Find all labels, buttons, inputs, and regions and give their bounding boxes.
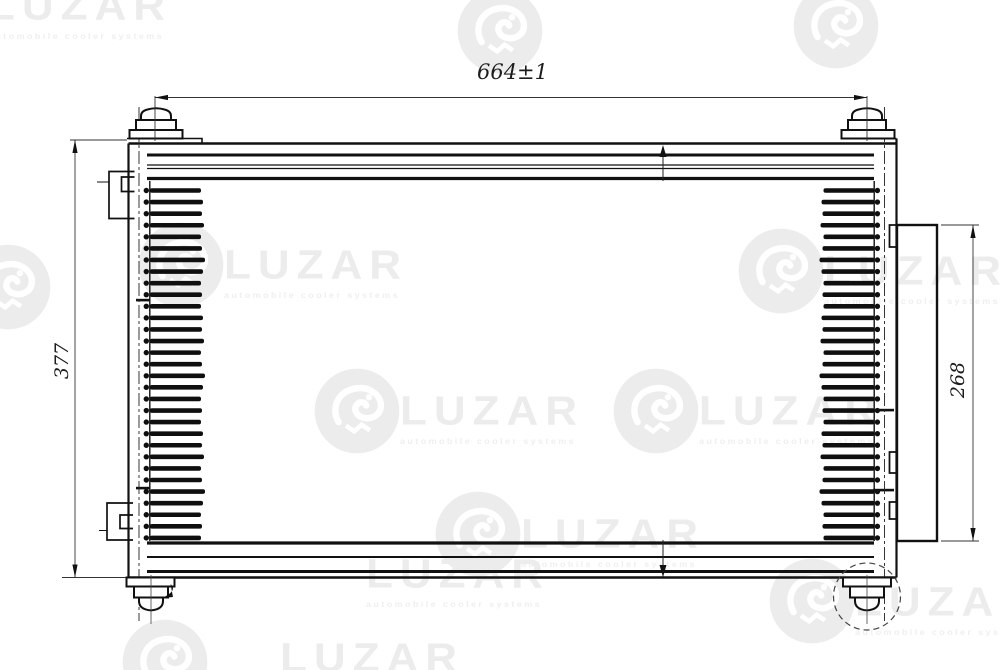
tube-end-dot [875, 211, 880, 216]
tube-end-dot [875, 396, 880, 401]
condenser-drawing [0, 0, 1000, 670]
fin-bar [824, 188, 875, 193]
tube-end-dot [875, 257, 880, 262]
tube-end-dot [875, 466, 880, 471]
tube-end-dot [144, 419, 149, 424]
fin-bar [150, 327, 202, 332]
header-walls [150, 181, 874, 541]
fin-bar [822, 501, 875, 506]
mounting-pin-bottom-left [127, 575, 175, 624]
receiver-drier [890, 225, 938, 541]
fin-bar [150, 188, 201, 193]
tube-end-dot [144, 257, 149, 262]
fin-bar [150, 443, 202, 448]
fin-bar [824, 466, 875, 471]
fin-bar [824, 536, 875, 541]
tube-end-dot [144, 373, 149, 378]
fin-bar [150, 304, 201, 309]
dimension-receiver-label: 268 [936, 358, 980, 402]
tube-end-dot [875, 280, 880, 285]
right-fins [820, 188, 881, 541]
tube-end-dot [144, 269, 149, 274]
fin-bar [821, 455, 875, 460]
fin-bar [150, 512, 201, 517]
tube-end-dot [875, 234, 880, 239]
fin-bar [150, 455, 204, 460]
fin-bar [150, 478, 202, 483]
fin-bar [150, 489, 205, 494]
tube-end-dot [144, 327, 149, 332]
fin-bar [150, 536, 201, 541]
tube-end-dot [875, 443, 880, 448]
fin-bar [823, 478, 875, 483]
fin-bar [150, 211, 202, 216]
tube-end-dot [144, 350, 149, 355]
tube-end-dot [144, 524, 149, 529]
tube-end-dot [875, 246, 880, 251]
fin-bar [824, 350, 875, 355]
tube-end-dot [144, 443, 149, 448]
tube-end-dot [144, 199, 149, 204]
fin-bar [824, 512, 875, 517]
tube-end-dot [144, 246, 149, 251]
fin-bar [150, 292, 202, 297]
tube-end-dot [875, 431, 880, 436]
tube-end-dot [875, 269, 880, 274]
tube-end-dot [875, 535, 880, 540]
dimension-width-label: 664±1 [420, 60, 605, 84]
tube-end-dot [144, 280, 149, 285]
fin-bar [822, 431, 875, 436]
fin-bar [824, 397, 875, 402]
fin-bar [822, 316, 875, 321]
fin-bar [823, 327, 875, 332]
core-frame [129, 139, 897, 578]
tube-end-dot [875, 385, 880, 390]
tube-end-dot [144, 304, 149, 309]
tube-end-dot [144, 338, 149, 343]
fin-bar [823, 443, 875, 448]
fin-bar [150, 246, 202, 251]
fin-bar [150, 466, 201, 471]
tube-end-dot [144, 315, 149, 320]
top-band [147, 155, 874, 179]
tube-end-dot [875, 454, 880, 459]
center-marks [660, 145, 667, 577]
fin-bar [150, 397, 201, 402]
tube-end-dot [144, 512, 149, 517]
tube-end-dot [144, 454, 149, 459]
fin-bar [820, 373, 875, 378]
tube-end-dot [875, 338, 880, 343]
tube-end-dot [144, 489, 149, 494]
fin-bar [150, 350, 201, 355]
tube-end-dot [144, 477, 149, 482]
tube-end-dot [875, 292, 880, 297]
tube-end-dot [144, 466, 149, 471]
tube-end-dot [144, 362, 149, 367]
fin-bar [150, 385, 203, 390]
fin-bar [150, 269, 203, 274]
dimension-height-label: 377 [40, 339, 84, 383]
tube-end-dot [144, 223, 149, 228]
tube-end-dot [144, 431, 149, 436]
tube-end-dot [875, 199, 880, 204]
tube-end-dot [875, 500, 880, 505]
cross-stubs [136, 299, 894, 492]
fin-bar [824, 304, 875, 309]
tube-end-dot [875, 188, 880, 193]
dimension-width [155, 95, 867, 141]
fin-bar [823, 524, 875, 529]
tube-end-dot [144, 500, 149, 505]
tube-end-dot [875, 362, 880, 367]
fin-bar [150, 431, 203, 436]
tube-end-dot [875, 477, 880, 482]
fin-bar [820, 258, 875, 263]
fin-bar [150, 362, 202, 367]
fin-bar [824, 281, 875, 286]
fin-bar [150, 258, 205, 263]
tube-end-dot [144, 211, 149, 216]
tube-end-dot [875, 223, 880, 228]
fin-bar [150, 223, 204, 228]
tube-end-dot [144, 408, 149, 413]
left-fins [144, 188, 205, 541]
fin-bar [150, 316, 203, 321]
fin-bar [150, 524, 202, 529]
drawing-canvas: LUZARautomobile cooler systemsLUZARautom… [0, 0, 1000, 670]
tube-end-dot [875, 327, 880, 332]
fin-bar [823, 408, 875, 413]
fin-bar [150, 420, 201, 425]
tube-end-dot [144, 535, 149, 540]
fin-bar [822, 269, 875, 274]
fin-bar [824, 235, 875, 240]
fin-bar [150, 501, 203, 506]
mounting-pin-top-right [842, 108, 897, 138]
fin-bar [823, 362, 875, 367]
fin-bar [150, 281, 201, 286]
tube-end-dot [144, 396, 149, 401]
tube-end-dot [875, 512, 880, 517]
tube-end-dot [875, 524, 880, 529]
tube-end-dot [875, 373, 880, 378]
fin-bar [150, 373, 205, 378]
fin-bar [824, 420, 875, 425]
fin-bar [150, 235, 201, 240]
fin-bar [150, 408, 202, 413]
fin-bar [150, 339, 204, 344]
mounting-pin-top-left [127, 108, 202, 143]
fin-bar [823, 246, 875, 251]
tube-end-dot [875, 419, 880, 424]
tube-end-dot [144, 188, 149, 193]
bottom-band [147, 543, 874, 572]
tube-end-dot [875, 304, 880, 309]
fin-bar [150, 200, 203, 205]
fin-bar [823, 292, 875, 297]
tube-end-dot [875, 350, 880, 355]
fin-bar [820, 489, 875, 494]
tube-end-dot [875, 315, 880, 320]
fin-bar [821, 339, 875, 344]
mounting-pin-bottom-right [834, 563, 901, 630]
fin-bar [821, 223, 875, 228]
tube-end-dot [144, 385, 149, 390]
fin-bar [822, 385, 875, 390]
tube-end-dot [144, 234, 149, 239]
fin-bar [822, 200, 875, 205]
tube-end-dot [144, 292, 149, 297]
fin-bar [823, 211, 875, 216]
